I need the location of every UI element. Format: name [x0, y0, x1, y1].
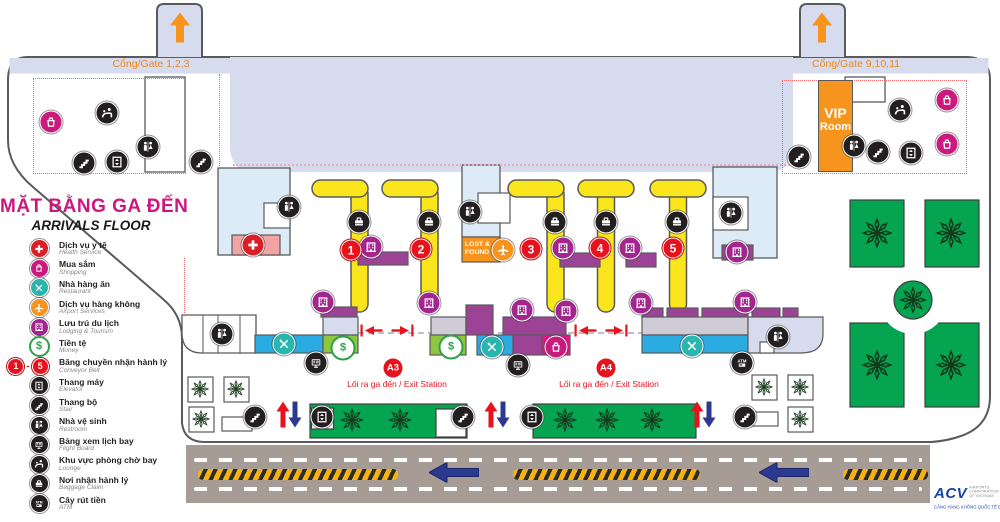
legend-label-vn: Nơi nhận hành lý — [59, 476, 128, 485]
lodging-icon — [30, 318, 49, 337]
airport-icon — [492, 239, 515, 262]
tree-icon — [639, 407, 665, 433]
blue-down-arrow — [703, 402, 716, 433]
baggage-icon — [666, 211, 689, 234]
legend-item-baggage: Nơi nhận hành lýBaggage Claim — [0, 474, 182, 494]
restroom-icon — [211, 323, 234, 346]
restaurant-icon — [273, 333, 296, 356]
tree-icon — [934, 216, 968, 250]
lodging-icon — [555, 300, 578, 323]
legend-item-atm: ATMCây rút tiềnATM — [0, 494, 182, 514]
legend-item-restroom: Nhà vệ sinhRestroom — [0, 415, 182, 435]
vip-room: VIP Room — [818, 80, 853, 172]
acv-logo-text: ACV — [934, 486, 967, 501]
gate-label-left: Cổng/Gate 1,2,3 — [112, 58, 189, 70]
airport-icon — [24, 298, 54, 317]
lounge-icon — [889, 99, 912, 122]
lost-found-annex — [478, 193, 510, 223]
stairs-icon — [30, 396, 49, 415]
lane-marking — [194, 458, 922, 462]
lounge-icon — [96, 102, 119, 125]
elevator-icon — [900, 142, 923, 165]
stairs-icon — [73, 152, 96, 175]
legend-label-en: Baggage Claim — [59, 485, 128, 492]
legend-label-en: Flight Board — [59, 446, 134, 453]
crosswalk-hatch — [198, 469, 398, 480]
orange-up-arrow — [170, 13, 190, 48]
legend-item-lounge: Khu vực phòng chờ bayLounge — [0, 455, 182, 475]
legend-label-vn: Nhà hàng ăn — [59, 280, 110, 289]
restaurant-icon — [481, 336, 504, 359]
flightboard-icon — [305, 352, 328, 375]
arrivals-floor-map: Cổng/Gate 1,2,3 Cổng/Gate 9,10,11 VIP Ro… — [0, 0, 1000, 522]
atm-icon: ATM — [24, 494, 54, 513]
lodging-icon — [734, 291, 757, 314]
legend-item-flightboard: Bảng xem lịch bayFlight Board — [0, 435, 182, 455]
acv-logo-sub2: CẢNG HÀNG KHÔNG QUỐC TẾ ĐÀ NẴNG — [934, 505, 1000, 510]
zone-dotted-divider — [184, 258, 185, 315]
atm-icon: ATM — [731, 352, 754, 375]
svg-text:ATM: ATM — [738, 359, 747, 364]
carousel-4-bar — [578, 180, 634, 197]
stairs-icon — [24, 396, 54, 415]
shopping-icon — [936, 133, 959, 156]
shopping-icon — [936, 89, 959, 112]
flightboard-icon — [30, 435, 49, 454]
carousel-1-bar — [312, 180, 368, 197]
legend-label-en: Airport Services — [59, 309, 140, 316]
legend-label-vn: Cây rút tiền — [59, 496, 106, 505]
stairs-icon — [452, 406, 475, 429]
baggage-icon — [544, 211, 567, 234]
medical-icon — [30, 239, 49, 258]
restroom-icon — [843, 135, 866, 158]
legend-label-vn: Thang máy — [59, 378, 104, 387]
tree-icon — [860, 348, 894, 382]
tree-icon — [790, 377, 810, 397]
legend-label-en: Lodging & Tourism — [59, 329, 119, 336]
restroom-icon — [24, 416, 54, 435]
hall-dotted-line — [233, 164, 790, 166]
legend-label-en: Elevator — [59, 387, 104, 394]
exit-station-a3-badge: A3 — [384, 359, 403, 378]
tree-icon — [934, 348, 968, 382]
tree-icon — [190, 379, 210, 399]
tree-icon — [191, 409, 211, 429]
legend-label-en: Health Service — [59, 250, 107, 257]
blue-down-arrow — [497, 402, 510, 433]
legend-item-medical: Dịch vụ y tếHealth Service — [0, 239, 182, 259]
restroom-icon — [137, 136, 160, 159]
gate-label-right: Cổng/Gate 9,10,11 — [812, 58, 900, 70]
legend-item-lodging: Lưu trú du lịchLodging & Tourism — [0, 317, 182, 337]
legend-label-en: Restroom — [59, 427, 107, 434]
legend-label-en: Conveyor Belt — [59, 368, 167, 375]
stairs-icon — [734, 406, 757, 429]
legend-label-vn: Dịch vụ hàng không — [59, 300, 140, 309]
lodging-icon — [511, 299, 534, 322]
vip-room-label: VIP — [819, 105, 852, 121]
carousel-number-badge: 1 — [341, 240, 362, 261]
shopping-icon — [545, 336, 568, 359]
tree-icon — [754, 377, 774, 397]
acv-logo-sub: AIRPORTS CORPORATION OF VIETNAM — [969, 486, 1000, 499]
medical-icon — [24, 239, 54, 258]
tree-icon — [387, 407, 413, 433]
exit-marker-arrow — [360, 324, 414, 343]
legend-label-vn: Băng chuyền nhận hành lý — [59, 358, 167, 367]
central-hall — [230, 57, 793, 172]
shopping-icon — [24, 259, 54, 278]
shopping-icon — [30, 259, 49, 278]
legend-item-money: $Tiền tệMoney — [0, 337, 182, 357]
lodging-icon — [726, 241, 749, 264]
legend-label-vn: Thang bộ — [59, 398, 97, 407]
elevator-icon — [521, 406, 544, 429]
flightboard-icon — [507, 354, 530, 377]
crosswalk-hatch — [513, 469, 700, 480]
legend: MẶT BẰNG GA ĐẾN ARRIVALS FLOOR Dịch vụ y… — [0, 196, 182, 513]
crosswalk-hatch — [843, 469, 928, 480]
stairs-icon — [788, 146, 811, 169]
lodging-icon — [24, 318, 54, 337]
lodging-icon — [360, 236, 383, 259]
legend-label-vn: Mua sắm — [59, 260, 95, 269]
lodging-icon — [552, 237, 575, 260]
restroom-icon — [30, 416, 49, 435]
carousel-number-badge: 4 — [590, 238, 611, 259]
right-services — [642, 308, 823, 353]
service-block — [323, 317, 358, 335]
elevator-icon — [30, 376, 49, 395]
tree-icon — [226, 379, 246, 399]
baggage-icon — [30, 474, 49, 493]
elevator-icon — [106, 151, 129, 174]
exit-station-a4-badge: A4 — [597, 359, 616, 378]
restroom-icon — [459, 201, 482, 224]
shopping-icon — [40, 111, 63, 134]
legend-label-en: ATM — [59, 505, 106, 512]
lounge-icon — [30, 455, 49, 474]
orange-up-arrow — [812, 13, 832, 48]
restaurant-icon — [30, 278, 49, 297]
lane-marking — [194, 487, 922, 491]
legend-label-en: Restaurant — [59, 289, 110, 296]
legend-item-shopping: Mua sắmShopping — [0, 259, 182, 279]
road — [186, 445, 930, 503]
legend-label-en: Lounge — [59, 466, 157, 473]
road-left-arrow — [759, 463, 809, 488]
elevator-icon — [311, 406, 334, 429]
money-icon: $ — [331, 336, 356, 361]
exit-station-a4-label: Lối ra ga đến / Exit Station — [559, 379, 659, 389]
legend-label-en: Money — [59, 348, 86, 355]
legend-item-conveyor: 1-5Băng chuyền nhận hành lýConveyor Belt — [0, 357, 182, 377]
carousel-number-badge: 5 — [663, 238, 684, 259]
zone-dotted-divider — [219, 74, 220, 168]
blue-down-arrow — [289, 402, 302, 433]
lodging-icon — [630, 292, 653, 315]
legend-item-airport: Dịch vụ hàng khôngAirport Services — [0, 298, 182, 318]
restaurant-icon — [681, 335, 704, 358]
medical-icon — [242, 234, 265, 257]
road-left-arrow — [429, 463, 479, 488]
legend-item-stairs: Thang bộStair — [0, 396, 182, 416]
legend-label-en: Shopping — [59, 270, 95, 277]
conveyor-range-icon: 1-5 — [2, 358, 54, 375]
legend-label-vn: Dịch vụ y tế — [59, 241, 107, 250]
lodging-icon — [418, 292, 441, 315]
stairs-icon — [867, 141, 890, 164]
page-title: MẶT BẰNG GA ĐẾN — [0, 196, 182, 218]
tree-icon — [860, 216, 894, 250]
legend-item-restaurant: Nhà hàng ănRestaurant — [0, 278, 182, 298]
carousel-5-bar — [650, 180, 706, 197]
money-icon: $ — [24, 336, 54, 357]
tree-icon — [552, 407, 578, 433]
page-subtitle: ARRIVALS FLOOR — [0, 218, 182, 233]
svg-text:ATM: ATM — [35, 500, 42, 504]
baggage-icon — [348, 211, 371, 234]
restaurant-icon — [24, 278, 54, 297]
lodging-icon — [619, 237, 642, 260]
legend-label-vn: Khu vực phòng chờ bay — [59, 456, 157, 465]
restroom-icon — [278, 196, 301, 219]
carousel-number-badge: 2 — [411, 239, 432, 260]
stairs-icon — [190, 151, 213, 174]
baggage-icon — [418, 211, 441, 234]
atm-icon: ATM — [30, 494, 49, 513]
tree-icon — [339, 407, 365, 433]
tree-icon — [898, 285, 928, 315]
lounge-icon — [24, 455, 54, 474]
exit-station-a3-label: Lối ra ga đến / Exit Station — [347, 379, 447, 389]
carousel-3-bar — [508, 180, 564, 197]
airport-icon — [30, 298, 49, 317]
flightboard-icon — [24, 435, 54, 454]
lodging-icon — [312, 291, 335, 314]
legend-item-elevator: Thang máyElevator — [0, 376, 182, 396]
tree-icon — [790, 409, 810, 429]
money-icon: $ — [439, 335, 464, 360]
exit-marker-arrow — [574, 324, 628, 343]
legend-label-vn: Lưu trú du lịch — [59, 319, 119, 328]
baggage-icon — [24, 474, 54, 493]
carousel-number-badge: 3 — [521, 239, 542, 260]
legend-label-vn: Bảng xem lịch bay — [59, 437, 134, 446]
restroom-icon — [720, 202, 743, 225]
money-icon: $ — [29, 336, 50, 357]
tree-icon — [594, 407, 620, 433]
restroom-icon — [767, 326, 790, 349]
elevator-icon — [24, 376, 54, 395]
stairs-icon — [244, 406, 267, 429]
legend-label-vn: Tiền tệ — [59, 339, 86, 348]
baggage-icon — [595, 211, 618, 234]
carousel-2-bar — [382, 180, 438, 197]
legend-label-en: Stair — [59, 407, 97, 414]
legend-label-vn: Nhà vệ sinh — [59, 417, 107, 426]
acv-logo: ACV AIRPORTS CORPORATION OF VIETNAM — [934, 486, 1000, 502]
